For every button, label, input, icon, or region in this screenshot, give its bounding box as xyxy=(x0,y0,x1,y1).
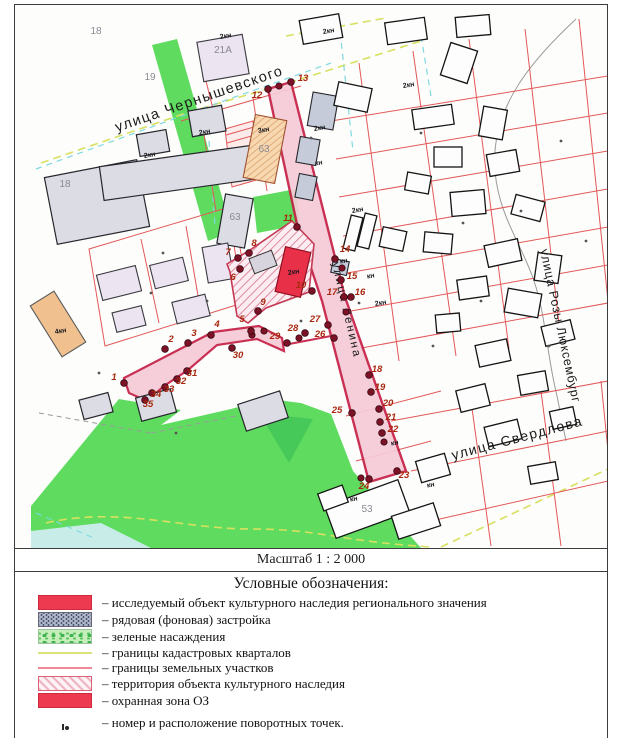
legend: Условные обозначения: – исследуемый объе… xyxy=(15,575,607,738)
turning-point-dot xyxy=(339,265,345,271)
turning-point-7 xyxy=(235,255,242,262)
turning-point-2 xyxy=(162,346,169,353)
map-area: улица Чернышевскогоулица Розы Люксембург… xyxy=(15,5,607,549)
turning-point-11 xyxy=(294,224,301,231)
turning-point-1 xyxy=(121,380,128,387)
turning-point-dot xyxy=(343,309,349,315)
legend-item-heritage-object: – исследуемый объект культурного наследи… xyxy=(38,595,607,610)
turning-point-13 xyxy=(288,79,295,86)
turning-point-number: 24 xyxy=(358,481,370,492)
turning-point-dot xyxy=(381,439,387,445)
turning-point-4 xyxy=(208,332,215,339)
scale-bar: Масштаб 1 : 2 000 xyxy=(15,549,607,572)
turning-point-number: 26 xyxy=(314,329,326,340)
building-type-label: 2кн xyxy=(351,206,364,215)
tree-icon xyxy=(310,137,313,140)
legend-item-greenery: – зеленые насаждения xyxy=(38,629,607,644)
legend-item-parcel-borders: – границы земельных участков xyxy=(38,661,607,674)
building-type-label: кн xyxy=(314,159,323,167)
address-label: 18 xyxy=(90,26,102,37)
turning-point-26 xyxy=(331,335,338,342)
turning-point-21 xyxy=(377,419,384,426)
turning-point-number: 29 xyxy=(269,331,281,342)
turning-point-number: 4 xyxy=(213,319,220,330)
building-type-label: 2кн xyxy=(198,128,211,137)
tree-icon xyxy=(175,432,178,435)
turning-point-number: 13 xyxy=(298,73,309,84)
building-type-label: кн xyxy=(339,257,348,265)
turning-point-number: 28 xyxy=(287,323,299,334)
turning-point-number: 6 xyxy=(230,272,236,283)
turning-point-12 xyxy=(265,86,272,93)
tree-icon xyxy=(358,302,361,305)
turning-point-20 xyxy=(376,406,383,413)
tree-icon xyxy=(560,140,563,143)
turning-point-17 xyxy=(341,294,348,301)
turning-point-number: 18 xyxy=(372,364,383,375)
turning-point-25 xyxy=(349,410,356,417)
turning-point-number: 31 xyxy=(187,368,198,379)
city-plan-map: улица Чернышевскогоулица Розы Люксембург… xyxy=(15,5,607,548)
address-label: 18 xyxy=(59,179,71,190)
tree-icon xyxy=(585,240,588,243)
turning-point-number: 15 xyxy=(347,271,358,282)
legend-title: Условные обозначения: xyxy=(15,575,607,593)
turning-point-number: 10 xyxy=(296,280,307,291)
tree-icon xyxy=(520,210,523,213)
turning-point-dot xyxy=(276,83,282,89)
address-label: 21А xyxy=(214,45,232,56)
scanned-map-sheet: улица Чернышевскогоулица Розы Люксембург… xyxy=(0,0,621,749)
turning-point-number: 25 xyxy=(331,405,343,416)
turning-point-number: 33 xyxy=(164,384,175,395)
turning-point-28 xyxy=(302,330,309,337)
turning-point-number: 9 xyxy=(260,297,266,308)
tree-icon xyxy=(150,292,153,295)
turning-point-number: 27 xyxy=(309,314,321,325)
turning-point-14 xyxy=(332,256,339,263)
turning-point-number: 23 xyxy=(398,470,410,481)
building-type-label: 2кн xyxy=(402,81,415,90)
tree-icon xyxy=(420,132,423,135)
tree-icon xyxy=(548,345,551,348)
turning-point-22 xyxy=(379,430,386,437)
address-label: 19 xyxy=(144,72,156,83)
tree-icon xyxy=(432,345,435,348)
turning-point-number: 5 xyxy=(239,314,245,325)
turning-point-number: 16 xyxy=(355,287,366,298)
tree-icon xyxy=(98,372,101,375)
turning-point-5 xyxy=(248,328,255,335)
legend-swatch-cadastral-borders xyxy=(38,646,92,659)
legend-item-heritage-territory: – территория объекта культурного наследи… xyxy=(38,676,607,691)
tree-icon xyxy=(162,252,165,255)
turning-point-number: 12 xyxy=(252,90,263,101)
legend-swatch-greenery xyxy=(38,629,92,644)
turning-point-number: 17 xyxy=(327,287,338,298)
turning-point-number: 19 xyxy=(375,382,386,393)
turning-point-6 xyxy=(237,266,244,273)
building-type-label: кн xyxy=(349,495,358,503)
turning-point-3 xyxy=(185,340,192,347)
address-label: 63 xyxy=(258,144,270,155)
building-type-label: 2кн xyxy=(313,124,326,133)
turning-point-number: 22 xyxy=(387,424,399,435)
turning-point-number: 8 xyxy=(251,238,257,249)
turning-point-number: 14 xyxy=(340,244,351,255)
turning-point-number: 21 xyxy=(385,412,397,423)
building-4kn xyxy=(30,291,86,357)
tree-icon xyxy=(480,300,483,303)
legend-swatch-turning-point-marker xyxy=(38,715,92,730)
legend-swatch-heritage-territory xyxy=(38,676,92,691)
turning-point-number: 20 xyxy=(382,398,394,409)
legend-item-turning-points: – номер и расположение поворотных точек. xyxy=(38,715,607,730)
legend-swatch-heritage-object xyxy=(38,595,92,610)
turning-point-number: 3 xyxy=(191,328,197,339)
legend-item-cadastral-borders: – границы кадастровых кварталов xyxy=(38,646,607,659)
tree-icon xyxy=(206,300,209,303)
turning-point-16 xyxy=(348,294,355,301)
turning-point-dot xyxy=(296,335,302,341)
turning-point-number: 2 xyxy=(167,334,174,345)
address-label: 53 xyxy=(361,504,373,515)
turning-point-number: 32 xyxy=(176,376,187,387)
turning-point-dot xyxy=(261,328,267,334)
building-type-label: 2кн xyxy=(374,299,387,308)
turning-point-29 xyxy=(284,340,291,347)
turning-point-9 xyxy=(255,308,262,315)
legend-swatch-parcel-borders xyxy=(38,661,92,674)
turning-point-number: 35 xyxy=(143,399,154,410)
scale-label: Масштаб 1 : 2 000 xyxy=(257,552,365,568)
turning-point-number: 11 xyxy=(283,213,293,224)
turning-point-19 xyxy=(368,389,375,396)
turning-point-8 xyxy=(246,250,253,257)
legend-item-background-build: – рядовая (фоновая) застройка xyxy=(38,612,607,627)
legend-swatch-background-build xyxy=(38,612,92,627)
legend-item-protection-zone: – охранная зона ОЗ xyxy=(38,693,607,708)
turning-point-10 xyxy=(309,288,316,295)
building-type-label: кн xyxy=(366,272,375,280)
building-type-label: кн xyxy=(426,481,435,489)
turning-point-27 xyxy=(325,322,332,329)
turning-point-15 xyxy=(338,277,345,284)
tree-icon xyxy=(300,320,303,323)
sheet-frame: улица Чернышевскогоулица Розы Люксембург… xyxy=(14,4,608,738)
turning-point-number: 30 xyxy=(233,350,244,361)
turning-point-number: 1 xyxy=(111,372,116,383)
address-label: 63 xyxy=(229,212,241,223)
legend-swatch-protection-zone xyxy=(38,693,92,708)
protection-zone-arm xyxy=(124,326,284,401)
tree-icon xyxy=(462,222,465,225)
turning-point-number: 7 xyxy=(225,247,231,258)
building-type-label: кн xyxy=(390,439,399,447)
